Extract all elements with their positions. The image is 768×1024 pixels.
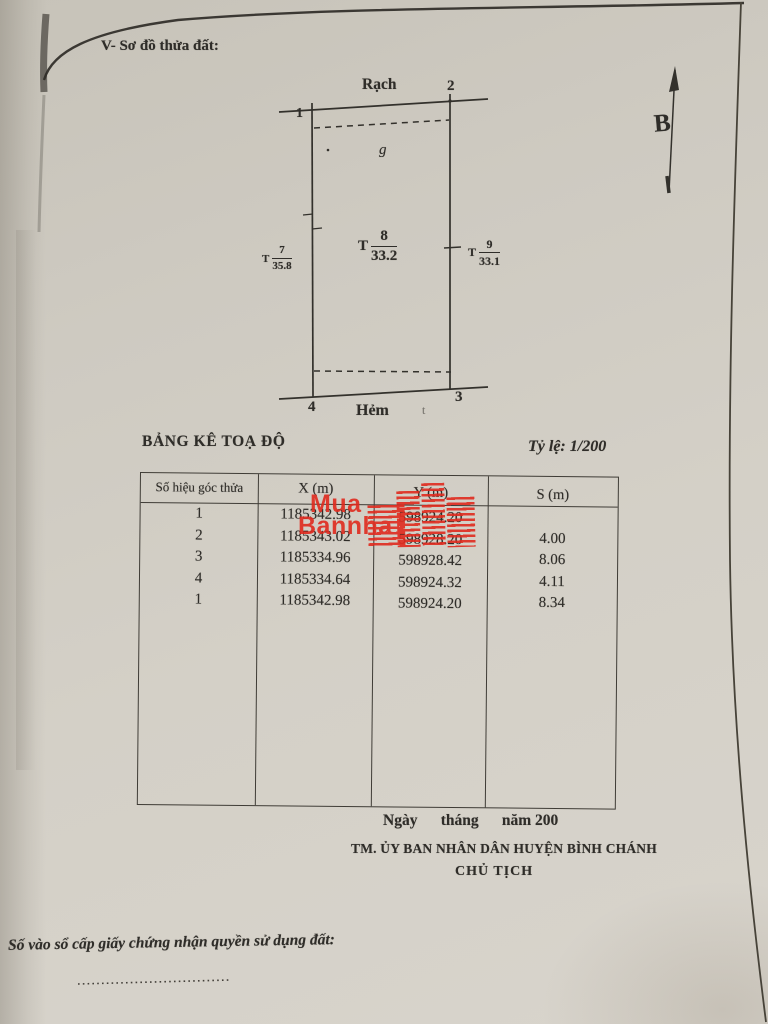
dimension-prefix: T — [262, 253, 269, 265]
cell-corner-id: 4 — [140, 570, 257, 588]
right-page-edge — [730, 2, 766, 1022]
cell-x-coordinate: 1185334.96 — [257, 549, 373, 567]
corner-label-3: 3 — [455, 389, 463, 406]
scale-label: Tỷ lệ: 1/200 — [528, 438, 606, 456]
setback-dashed-top — [314, 120, 449, 128]
cell-y-coordinate: 598924.32 — [373, 574, 487, 592]
plot-left-edge — [312, 103, 313, 397]
signature-dotted-line — [78, 980, 230, 984]
right-edge-tick — [444, 247, 461, 248]
scanned-land-document: V- Sơ đồ thửa đất: Rạch 1 2 3 4 Hẻm t g … — [0, 0, 768, 1024]
watermark-building-icon — [421, 483, 446, 548]
left-ink-smudge-tail — [39, 95, 44, 232]
dimension-prefix: T — [358, 238, 368, 255]
cell-segment-length: 8.34 — [487, 594, 617, 612]
dimension-fraction: 8 33.2 — [371, 229, 397, 264]
muabannha-watermark: Mua Bannha — [296, 481, 486, 551]
date-line: Ngày tháng năm 200 — [383, 812, 558, 830]
dimension-numerator: 9 — [479, 238, 500, 253]
corner-2-dot — [448, 99, 451, 102]
section-heading: V- Sơ đồ thửa đất: — [101, 38, 219, 55]
corner-label-2: 2 — [447, 78, 455, 95]
cell-segment-length: 8.06 — [487, 551, 617, 569]
dimension-right: T 9 33.1 — [468, 238, 500, 267]
stray-pen-mark: t — [422, 403, 425, 418]
cell-x-coordinate: 1185334.64 — [257, 571, 373, 589]
watermark-building-icon — [446, 497, 475, 548]
dimension-prefix: T — [468, 245, 476, 260]
dimension-fraction: 7 35.8 — [272, 245, 291, 272]
cell-segment-length: 4.00 — [487, 530, 617, 548]
north-label: B — [653, 109, 672, 138]
cell-corner-id: 1 — [141, 505, 258, 523]
chairman-title: CHỦ TỊCH — [455, 864, 533, 880]
dimension-denominator: 35.8 — [272, 259, 291, 272]
dimension-numerator: 7 — [272, 245, 291, 259]
committee-line: TM. ỦY BAN NHÂN DÂN HUYỆN BÌNH CHÁNH — [351, 841, 657, 857]
watermark-building-icon — [396, 491, 420, 548]
cell-corner-id: 1 — [140, 591, 257, 609]
dimension-denominator: 33.1 — [479, 253, 500, 267]
road-label-rach: Rạch — [362, 76, 396, 94]
road-label-hem: Hẻm — [356, 402, 389, 420]
cell-y-coordinate: 598928.42 — [373, 552, 487, 570]
dimension-left: T 7 35.8 — [262, 245, 292, 272]
header-corner-id: Số hiệu góc thửa — [141, 479, 258, 496]
cell-corner-id: 3 — [140, 548, 257, 566]
cell-y-coordinate: 598924.20 — [373, 595, 487, 613]
cell-segment-length: 4.11 — [487, 573, 617, 591]
north-arrowhead — [669, 66, 679, 92]
corner-label-1: 1 — [296, 106, 303, 122]
north-arrow-shaft-thick — [667, 176, 669, 193]
table-row: 1 1185342.98 598924.20 8.34 — [140, 591, 617, 617]
cell-x-coordinate: 1185342.98 — [257, 592, 373, 610]
dimension-numerator: 8 — [371, 229, 397, 247]
corner-label-4: 4 — [308, 399, 316, 416]
dimension-center: T 8 33.2 — [358, 229, 397, 264]
left-edge-tick-b — [312, 228, 322, 229]
plot-speck — [327, 149, 330, 152]
dimension-fraction: 9 33.1 — [479, 238, 500, 267]
left-edge-tick-a — [303, 214, 313, 215]
cell-segment-length — [488, 508, 618, 509]
header-s: S (m) — [488, 486, 618, 504]
coordinate-table-title: BẢNG KÊ TOẠ ĐỘ — [142, 433, 285, 451]
setback-dashed-bottom — [314, 371, 451, 372]
dimension-denominator: 33.2 — [371, 247, 397, 264]
rach-road-line — [279, 99, 488, 112]
cell-corner-id: 2 — [140, 527, 257, 545]
left-ink-smudge — [44, 14, 46, 92]
plot-inner-note: g — [379, 142, 387, 159]
